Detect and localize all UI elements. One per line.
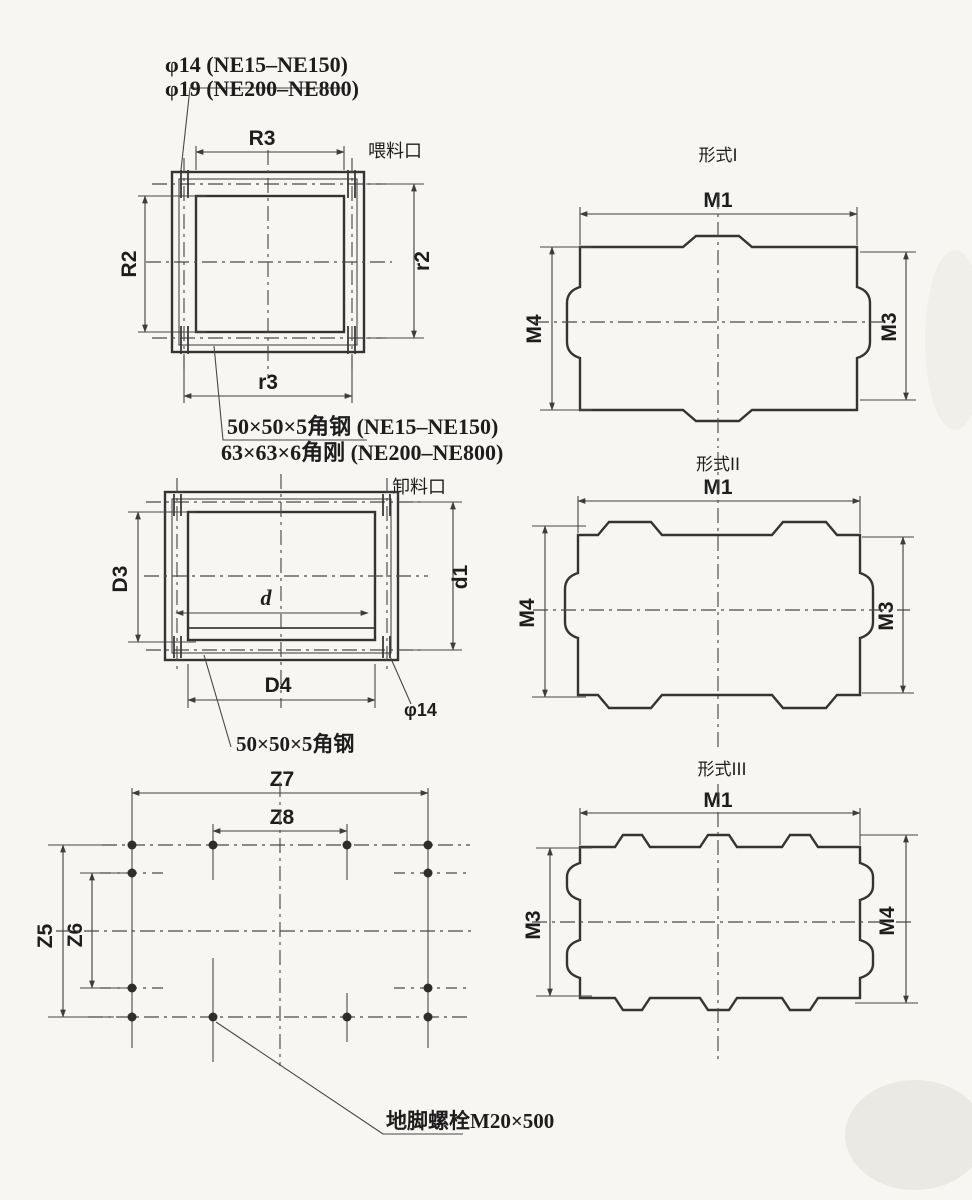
paper-background [0,0,972,1200]
dim-label-Z7: Z7 [270,768,295,791]
scanned-drawing-page: R3 R2 r2 r3 φ14 (NE15–NE150) φ19 (NE200–… [0,0,972,1200]
dim-label-Z5: Z5 [34,923,57,948]
discharge-outlet-label: 卸料口 [392,477,446,498]
dim-label-d1: d1 [449,564,472,589]
dim-label-Z6: Z6 [64,923,87,948]
dim-label-r3: r3 [258,371,278,394]
phi14-note: φ14 [404,700,437,720]
dim-label-R2: R2 [118,251,141,278]
angle-note-line2: 63×63×6角刚 (NE200–NE800) [221,440,503,465]
drawing-canvas: R3 R2 r2 r3 φ14 (NE15–NE150) φ19 (NE200–… [0,0,972,1200]
anchor-bolt-note: 地脚螺栓M20×500 [386,1109,554,1133]
dim-label-R3: R3 [249,127,276,150]
form-1-label-M4: M4 [523,314,546,343]
form-3-title: 形式III [697,760,746,780]
angle-note-line1: 50×50×5角钢 (NE15–NE150) [227,414,498,439]
dim-label-d: d [261,585,273,610]
form-1-label-M3: M3 [878,312,901,341]
form-3-label-M3: M3 [522,910,545,939]
feed-inlet-label: 喂料口 [368,141,422,162]
dim-label-r2: r2 [411,251,434,271]
form-1-title: 形式I [698,146,737,166]
form-2-label-M4: M4 [516,598,539,627]
hole-note-line2: φ19 (NE200–NE800) [165,76,359,101]
discharge-angle-note: 50×50×5角钢 [236,732,354,756]
dim-label-D3: D3 [109,566,132,593]
dim-label-Z8: Z8 [270,806,295,829]
hole-note-line1: φ14 (NE15–NE150) [165,52,348,77]
form-3-label-M4: M4 [876,906,899,935]
form-2-label-M3: M3 [875,601,898,630]
dim-label-D4: D4 [265,674,292,697]
